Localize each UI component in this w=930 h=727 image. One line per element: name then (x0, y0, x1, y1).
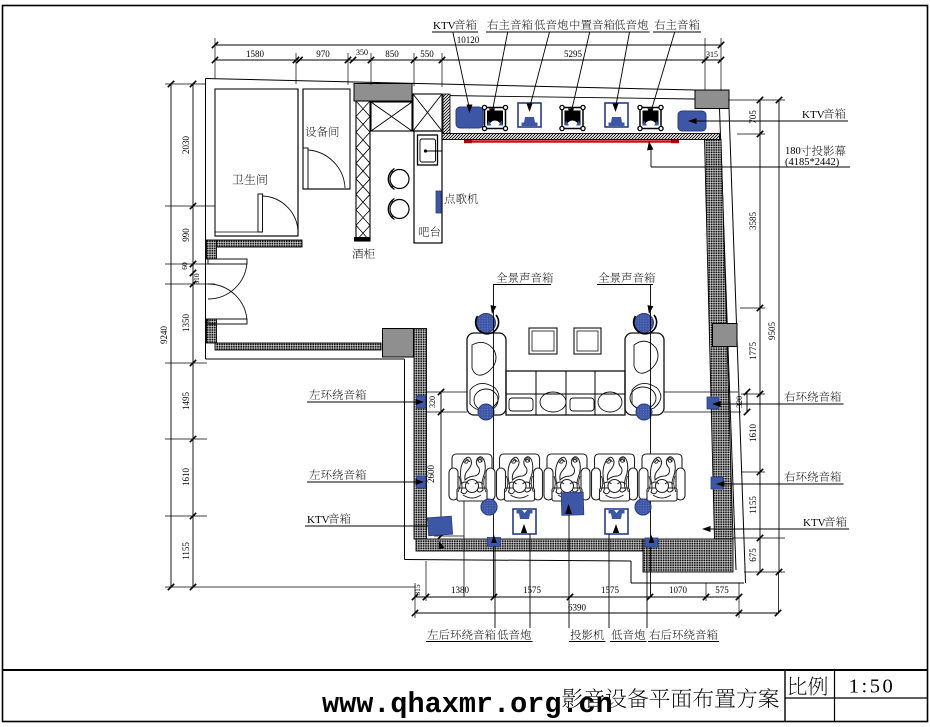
svg-text:2600: 2600 (426, 465, 436, 484)
svg-text:1575: 1575 (601, 585, 620, 595)
svg-text:KTV: KTV (433, 20, 456, 32)
svg-text:1350: 1350 (181, 314, 191, 333)
svg-text:1580: 1580 (246, 49, 265, 59)
svg-text:675: 675 (748, 548, 758, 562)
svg-text:60: 60 (180, 262, 189, 270)
svg-text:(4185*2442): (4185*2442) (785, 157, 840, 168)
svg-text:9505: 9505 (767, 322, 777, 341)
svg-text:315: 315 (413, 584, 422, 596)
svg-text:850: 850 (385, 49, 399, 59)
svg-text:1070: 1070 (669, 585, 688, 595)
svg-text:1155: 1155 (181, 542, 191, 560)
svg-text:2030: 2030 (181, 136, 191, 155)
svg-text:10120: 10120 (457, 35, 480, 45)
svg-text:705: 705 (748, 110, 758, 124)
svg-text:1775: 1775 (748, 342, 758, 361)
svg-text:KTV: KTV (803, 517, 826, 529)
svg-text:990: 990 (181, 228, 191, 242)
svg-text:315: 315 (706, 50, 718, 59)
svg-text:575: 575 (715, 585, 729, 595)
svg-text:1495: 1495 (181, 392, 191, 411)
svg-text:KTV: KTV (307, 514, 330, 526)
svg-text:5295: 5295 (564, 49, 583, 59)
svg-text:www.qhaxmr.org.cn: www.qhaxmr.org.cn (322, 688, 613, 721)
svg-text:1380: 1380 (451, 585, 470, 595)
svg-text:550: 550 (420, 49, 434, 59)
svg-text:1:50: 1:50 (849, 676, 895, 698)
svg-text:KTV: KTV (802, 109, 825, 121)
svg-text:1575: 1575 (523, 585, 542, 595)
svg-text:970: 970 (316, 49, 330, 59)
svg-text:310: 310 (192, 273, 201, 285)
svg-text:6390: 6390 (568, 603, 587, 613)
svg-text:180: 180 (785, 146, 801, 157)
svg-text:320: 320 (428, 396, 437, 408)
svg-text:1610: 1610 (181, 468, 191, 487)
svg-text:1155: 1155 (748, 496, 758, 514)
svg-text:3585: 3585 (748, 212, 758, 231)
svg-text:9240: 9240 (159, 326, 169, 345)
svg-text:320: 320 (735, 396, 744, 408)
svg-text:350: 350 (356, 48, 368, 57)
svg-text:1610: 1610 (748, 424, 758, 443)
